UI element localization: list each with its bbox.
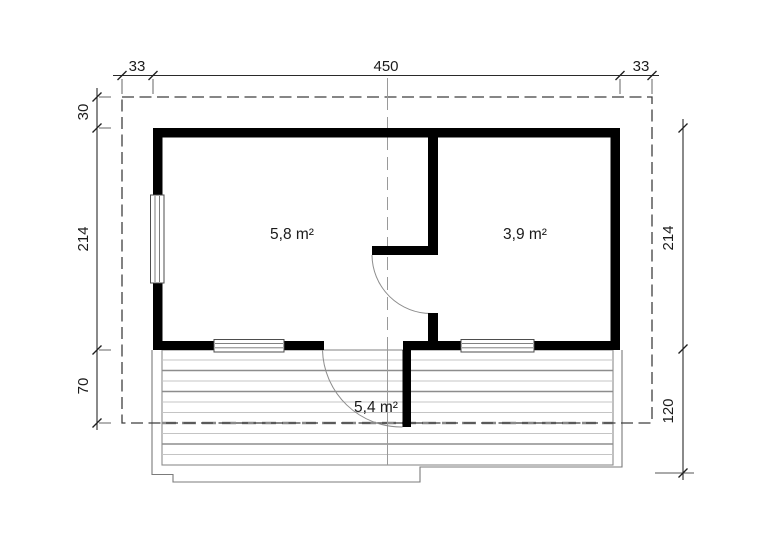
exterior-wall-bottom-seg1: [153, 341, 215, 350]
exterior-wall-left-upper: [153, 128, 163, 195]
exterior-wall-bottom-seg4: [533, 341, 620, 350]
interior-door-swing-arc: [372, 255, 432, 314]
dim-label-top-right-overhang: 33: [633, 58, 650, 75]
window-bottom-right: [461, 340, 534, 353]
room-right-area-label: 3,9 m²: [503, 226, 547, 243]
terrace-door-leaf: [403, 350, 412, 427]
dim-label-left-depth: 214: [75, 226, 92, 251]
interior-door-leaf: [372, 246, 438, 255]
dim-label-right-depth: 214: [660, 225, 677, 250]
interior-wall-upper: [428, 128, 438, 255]
terrace-area-label: 5,4 m²: [354, 399, 398, 416]
windows: [151, 195, 535, 352]
dim-label-top-left-overhang: 33: [129, 58, 146, 75]
dim-label-top-width: 450: [373, 58, 398, 75]
exterior-wall-right: [611, 128, 621, 350]
exterior-wall-top: [153, 128, 620, 138]
dimension-chain-left: 30 214 70: [75, 88, 111, 430]
dimension-chain-right: 214 120: [655, 119, 694, 480]
dim-label-left-terrace-offset: 70: [75, 378, 92, 395]
exterior-wall-bottom-seg2: [283, 341, 324, 350]
dim-label-left-roof-offset: 30: [75, 104, 92, 121]
exterior-wall-left-lower: [153, 283, 163, 350]
window-left-wall: [151, 195, 165, 283]
floor-plan-page: 33 450 33 30 214 70 214 120 5,8 m² 3,9 m…: [0, 0, 768, 543]
interior-wall-lower-stub: [428, 313, 438, 350]
dimension-chain-top: 33 450 33: [113, 58, 659, 94]
dim-label-right-terrace-depth: 120: [660, 398, 677, 423]
floor-plan-drawing: 33 450 33 30 214 70 214 120 5,8 m² 3,9 m…: [0, 0, 768, 543]
window-bottom-left: [214, 340, 284, 353]
room-left-area-label: 5,8 m²: [270, 226, 314, 243]
